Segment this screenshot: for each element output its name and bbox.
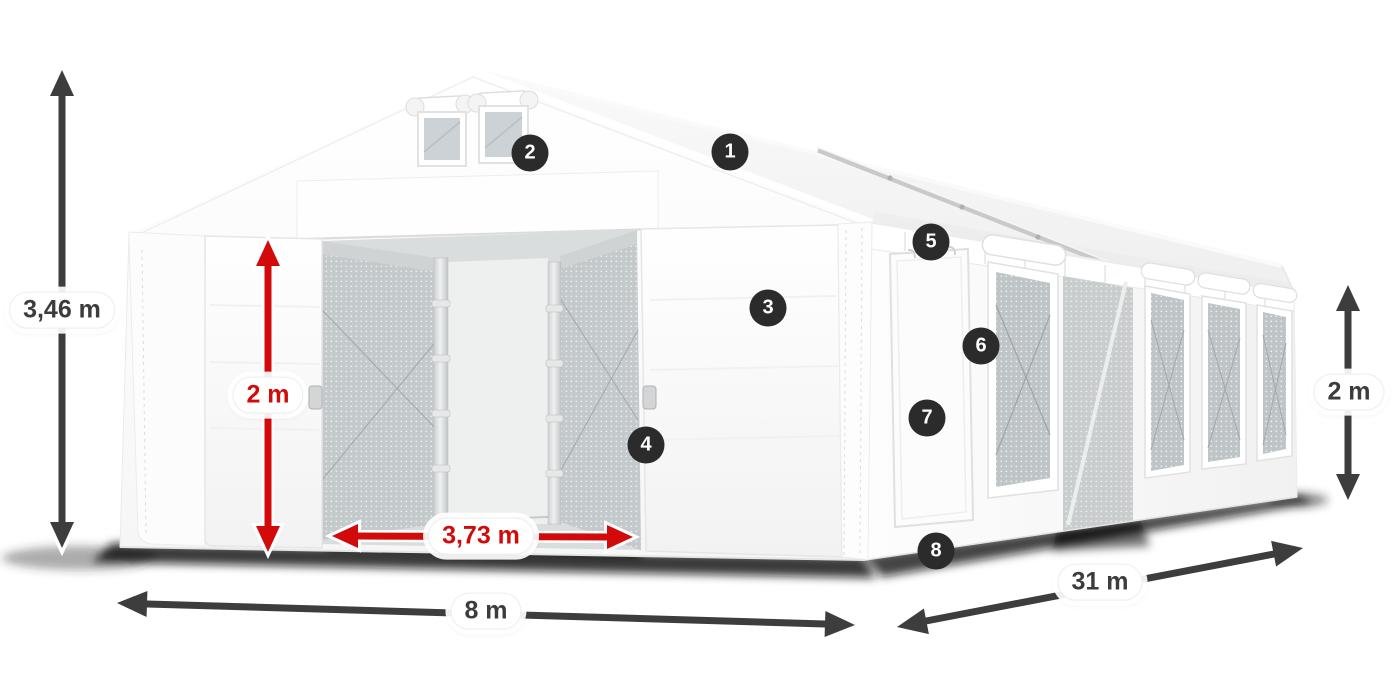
callout-badge-5[interactable]: 5 [913,224,950,261]
callout-badge-3[interactable]: 3 [750,290,787,327]
side-window-1 [981,233,1067,498]
dimension-label-side-height: 2 m [1313,374,1384,411]
callout-badge-6[interactable]: 6 [963,328,1000,365]
callout-badge-2[interactable]: 2 [512,135,549,172]
dimension-label-total-height: 3,46 m [9,292,115,329]
callout-badge-4[interactable]: 4 [628,427,665,464]
entrance-opening [322,230,641,550]
interior-mesh-right [561,244,641,550]
interior-mesh-left [322,254,437,540]
tent-illustration [0,0,1400,700]
dimension-label-length: 31 m [1058,564,1143,601]
front-door-right [641,225,842,557]
dimension-label-front-width: 8 m [450,593,521,630]
side-window-2 [1140,262,1196,478]
door-handle-right [643,386,656,409]
door-handle-left [309,386,322,409]
entrance-pole-left [432,258,450,526]
callout-badge-7[interactable]: 7 [909,400,946,437]
front-corner-column [838,222,872,560]
dimension-label-door-width: 3,73 m [428,518,534,555]
tent-dimensions-diagram: 3,46 m 2 m 3,73 m 8 m 31 m 2 m 1 2 3 4 5… [0,0,1400,700]
callout-badge-8[interactable]: 8 [918,533,955,570]
entrance-pole-right [546,262,563,524]
interior-gap [448,258,548,526]
callout-badge-1[interactable]: 1 [712,134,749,171]
side-door [890,247,973,527]
front-left-wall [129,232,205,546]
side-opening [1063,276,1133,531]
dimension-label-door-height: 2 m [232,377,303,414]
